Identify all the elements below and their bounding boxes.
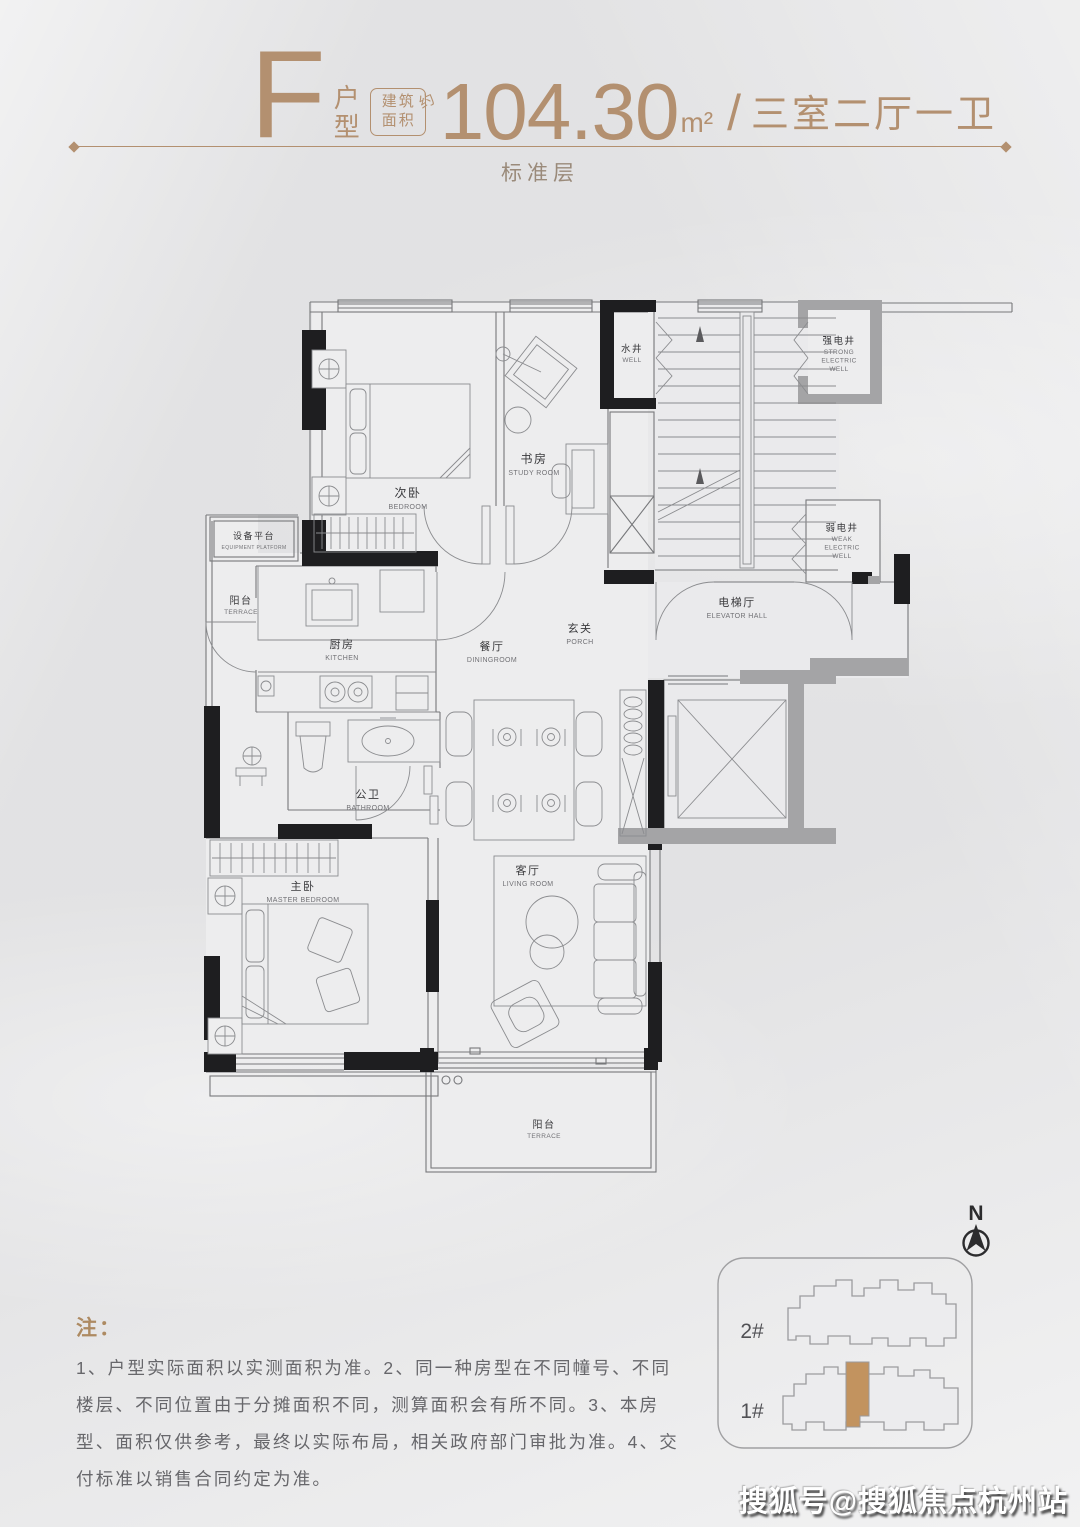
floor-label: 标准层	[0, 157, 1080, 187]
notes-title: 注：	[76, 1312, 656, 1342]
keyplan: 2# 1#	[718, 1258, 972, 1448]
floor-plan: 次卧BEDROOM书房STUDY ROOM水井WELL强电井STRONGELEC…	[0, 0, 1080, 1527]
type-char-2: 型	[334, 113, 360, 142]
watermark: 搜狐号@搜狐焦点杭州站	[739, 1478, 1068, 1520]
header-divider	[72, 146, 1008, 147]
area-box-line1: 建筑	[382, 93, 416, 112]
note-line-3: 型、面积仅供参考，最终以实际布局，相关政府部门审批为准。4、交	[76, 1424, 656, 1461]
note-line-2: 楼层、不同位置由于分摊面积不同，测算面积会有所不同。3、本房	[76, 1387, 656, 1424]
compass-arrow-icon	[967, 1224, 986, 1251]
note-line-4: 付标准以销售合同约定为准。	[76, 1461, 656, 1498]
note-line-1: 1、户型实际面积以实测面积为准。2、同一种房型在不同幢号、不同	[76, 1350, 656, 1387]
unit-type-letter: F	[250, 47, 326, 144]
keyplan-building-1-outline	[783, 1367, 958, 1430]
area-unit: m²	[680, 107, 713, 139]
type-char-1: 户	[334, 84, 360, 113]
layout-label: 三室二厅一卫	[751, 83, 997, 138]
notes-section: 注： 1、户型实际面积以实测面积为准。2、同一种房型在不同幢号、不同楼层、不同位…	[76, 1312, 656, 1498]
area-value: 104.30	[440, 80, 679, 144]
area-box: 建筑 面积 约	[370, 88, 426, 136]
header: F 户型 建筑 面积 约 104.30 m² / 三室二厅一卫	[250, 26, 997, 144]
keyplan-building-1-label: 1#	[740, 1400, 764, 1423]
compass: N	[964, 1202, 989, 1256]
compass-n-label: N	[968, 1202, 983, 1225]
keyplan-building-2-outline	[788, 1280, 956, 1346]
unit-type-suffix: 户型	[334, 84, 360, 142]
area-box-line2: 面积	[382, 112, 416, 131]
notes-body: 1、户型实际面积以实测面积为准。2、同一种房型在不同幢号、不同楼层、不同位置由于…	[76, 1350, 656, 1498]
keyplan-building-2-label: 2#	[740, 1320, 764, 1343]
floorplan-page: { "page": { "background": "#e9e9ea", "wa…	[0, 0, 1080, 1527]
separator: /	[727, 84, 741, 142]
